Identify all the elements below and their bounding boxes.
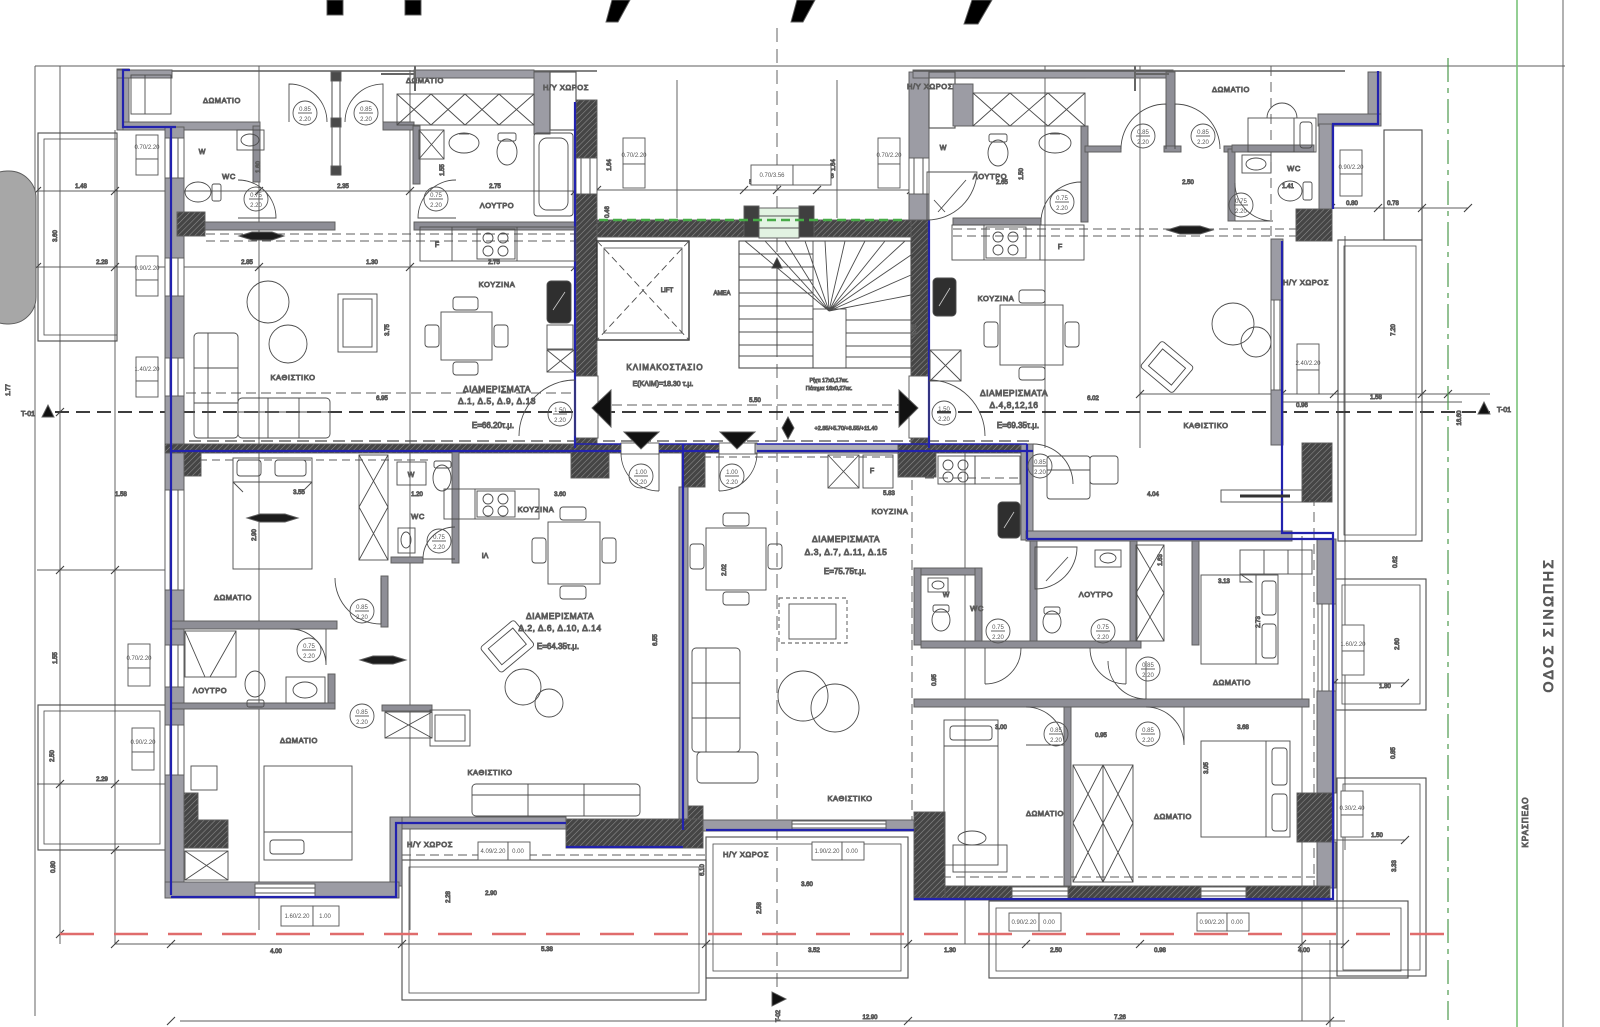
svg-text:ΔΩΜΑΤΙΟ: ΔΩΜΑΤΙΟ [1154,812,1192,821]
svg-text:Η/Υ ΧΩΡΟΣ: Η/Υ ΧΩΡΟΣ [723,850,769,859]
svg-text:WC: WC [222,172,236,181]
svg-text:0.85: 0.85 [360,107,372,113]
svg-text:ΔΩΜΑΤΙΟ: ΔΩΜΑΤΙΟ [1213,678,1251,687]
svg-text:1.63: 1.63 [1158,554,1164,566]
svg-text:W: W [943,592,950,599]
svg-text:4.09/2.20: 4.09/2.20 [480,849,506,855]
svg-text:2.75: 2.75 [489,184,501,190]
svg-text:ΚΡΑΣΠΕΔΟ: ΚΡΑΣΠΕΔΟ [1521,797,1530,848]
svg-text:2.20: 2.20 [1050,738,1062,744]
svg-text:16.60: 16.60 [1457,410,1463,426]
svg-text:2.20: 2.20 [433,545,445,551]
svg-text:3.60: 3.60 [801,882,813,888]
svg-text:Δ.2, Δ.6, Δ.10, Δ.14: Δ.2, Δ.6, Δ.10, Δ.14 [518,623,601,633]
svg-text:Δ.4,8,12,16: Δ.4,8,12,16 [990,400,1039,410]
svg-text:Η/Υ ΧΩΡΟΣ: Η/Υ ΧΩΡΟΣ [907,82,953,91]
svg-text:E=64.35τ.μ.: E=64.35τ.μ. [537,642,579,651]
svg-text:T-01: T-01 [1497,407,1511,414]
svg-text:2.60: 2.60 [1395,638,1401,650]
svg-text:ΚΛΙΜΑΚΟΣΤΑΣΙΟ: ΚΛΙΜΑΚΟΣΤΑΣΙΟ [626,363,703,372]
svg-text:ΚΑΘΙΣΤΙΚΟ: ΚΑΘΙΣΤΙΚΟ [270,373,315,382]
svg-text:0.00: 0.00 [512,849,524,855]
svg-text:Δ.1, Δ.5, Δ.9, Δ.13: Δ.1, Δ.5, Δ.9, Δ.13 [458,396,536,406]
svg-text:ΚΟΥΖΙΝΑ: ΚΟΥΖΙΝΑ [872,507,909,516]
svg-text:3.52: 3.52 [808,948,820,954]
svg-text:F: F [1058,244,1062,251]
svg-text:0.75: 0.75 [250,193,262,199]
svg-text:E=75.75τ.μ.: E=75.75τ.μ. [824,567,866,576]
svg-text:0.46: 0.46 [605,206,611,218]
svg-text:1.55: 1.55 [53,652,59,664]
svg-text:0.95: 0.95 [1095,733,1107,739]
svg-text:ΔΙΑΜΕΡΙΣΜΑΤΑ: ΔΙΑΜΕΡΙΣΜΑΤΑ [812,534,880,544]
svg-text:1.64: 1.64 [607,159,613,171]
svg-text:Πάτημα 16x0,27εκ.: Πάτημα 16x0,27εκ. [806,385,853,392]
svg-text:3.55: 3.55 [293,490,305,496]
svg-text:12.90: 12.90 [862,1015,878,1021]
svg-text:ΔΩΜΑΤΙΟ: ΔΩΜΑΤΙΟ [214,593,252,602]
svg-text:2.75: 2.75 [488,260,500,266]
svg-text:1.50: 1.50 [1371,833,1383,839]
svg-text:0.90/2.20: 0.90/2.20 [134,266,160,272]
svg-text:0.00: 0.00 [1231,920,1243,926]
svg-text:1.30: 1.30 [944,948,956,954]
svg-text:2.50: 2.50 [50,750,56,762]
svg-text:3.60: 3.60 [53,230,59,242]
svg-text:ΔΩΜΑΤΙΟ: ΔΩΜΑΤΙΟ [1026,809,1064,818]
svg-text:2.20: 2.20 [299,117,311,123]
svg-text:1.00: 1.00 [726,470,738,476]
svg-text:0.00: 0.00 [846,849,858,855]
svg-text:+2.85/+5.70/+8.55/+11.40: +2.85/+5.70/+8.55/+11.40 [815,426,878,432]
svg-text:WC: WC [1287,164,1301,173]
svg-text:2.20: 2.20 [992,635,1004,641]
svg-text:0.90/2.20: 0.90/2.20 [1338,165,1364,171]
svg-text:WC: WC [970,604,984,613]
svg-text:1.55: 1.55 [440,164,446,176]
svg-text:1.50: 1.50 [554,408,566,414]
svg-text:0.90/2.20: 0.90/2.20 [1011,920,1037,926]
svg-text:Ε(ΚΛΙΜ)=18.30 τ.μ.: Ε(ΚΛΙΜ)=18.30 τ.μ. [633,381,694,388]
svg-text:2.20: 2.20 [356,720,368,726]
svg-text:0.95: 0.95 [932,674,938,686]
svg-text:0.85: 0.85 [1197,130,1209,136]
svg-text:0.98: 0.98 [1154,948,1166,954]
svg-text:2.28: 2.28 [446,891,452,903]
svg-text:0.75: 0.75 [1056,196,1068,202]
svg-text:2.50: 2.50 [1182,180,1194,186]
svg-text:2.20: 2.20 [1142,738,1154,744]
svg-text:7.20: 7.20 [1391,324,1397,336]
svg-text:1.00: 1.00 [635,470,647,476]
svg-text:0.85: 0.85 [1050,728,1062,734]
svg-text:1.30: 1.30 [366,260,378,266]
svg-text:0.80: 0.80 [51,861,57,873]
svg-text:0.85: 0.85 [1034,460,1046,466]
svg-text:3.05: 3.05 [1204,762,1210,774]
svg-text:2.35: 2.35 [337,184,349,190]
svg-text:2.90: 2.90 [485,891,497,897]
svg-text:6.10: 6.10 [700,864,706,876]
svg-text:0.70/2.20: 0.70/2.20 [134,145,160,151]
svg-text:LIFT: LIFT [661,288,674,294]
svg-text:1.58: 1.58 [115,492,127,498]
svg-text:2.20: 2.20 [938,417,950,423]
svg-text:0.75: 0.75 [430,193,442,199]
svg-text:0.62: 0.62 [1393,556,1399,568]
svg-text:2.20: 2.20 [250,203,262,209]
svg-text:ΔΙΑΜΕΡΙΣΜΑΤΑ: ΔΙΑΜΕΡΙΣΜΑΤΑ [980,388,1048,398]
svg-text:2.29: 2.29 [96,777,108,783]
svg-text:E=66.20τ.μ.: E=66.20τ.μ. [472,421,514,430]
svg-text:2.20: 2.20 [430,203,442,209]
svg-text:2.50: 2.50 [1050,948,1062,954]
svg-text:1.64: 1.64 [831,159,837,171]
svg-text:1.77: 1.77 [6,384,12,396]
svg-text:3.75: 3.75 [912,324,918,336]
svg-text:2.20: 2.20 [1034,470,1046,476]
svg-text:5.83: 5.83 [883,491,895,497]
svg-text:0.75: 0.75 [992,625,1004,631]
svg-text:0.85: 0.85 [299,107,311,113]
svg-text:1.80: 1.80 [1379,684,1391,690]
svg-text:0.85: 0.85 [1142,728,1154,734]
svg-text:Δ.3, Δ.7, Δ.11, Δ.15: Δ.3, Δ.7, Δ.11, Δ.15 [805,547,888,557]
svg-text:0.70/2.20: 0.70/2.20 [621,153,647,159]
svg-text:1.60/2.20: 1.60/2.20 [284,914,310,920]
svg-text:0.75: 0.75 [303,644,315,650]
svg-text:1.50: 1.50 [1019,168,1025,180]
svg-text:0.70/3.56: 0.70/3.56 [759,173,785,179]
svg-text:ΚΟΥΖΙΝΑ: ΚΟΥΖΙΝΑ [479,280,516,289]
svg-text:Ρίχτι 17x0,17εκ.: Ρίχτι 17x0,17εκ. [809,378,848,384]
svg-text:7.26: 7.26 [1114,1015,1126,1021]
svg-text:1.60: 1.60 [256,161,262,173]
svg-text:T-01: T-01 [21,411,35,418]
svg-text:Η/Υ ΧΩΡΟΣ: Η/Υ ΧΩΡΟΣ [543,83,589,92]
svg-text:2.20: 2.20 [726,480,738,486]
svg-text:2.90: 2.90 [252,529,258,541]
svg-text:ΚΑΘΙΣΤΙΚΟ: ΚΑΘΙΣΤΙΚΟ [827,794,872,803]
svg-text:2.20: 2.20 [303,654,315,660]
svg-text:1.60/2.20: 1.60/2.20 [1340,642,1366,648]
svg-text:1.40/2.20: 1.40/2.20 [134,367,160,373]
svg-text:ΔΩΜΑΤΙΟ: ΔΩΜΑΤΙΟ [1212,85,1250,94]
svg-text:5.50: 5.50 [749,398,761,404]
svg-text:2.20: 2.20 [1197,140,1209,146]
svg-text:1.41: 1.41 [1282,184,1294,190]
svg-text:ΚΑΘΙΣΤΙΚΟ: ΚΑΘΙΣΤΙΚΟ [1183,421,1228,430]
svg-text:3.60: 3.60 [554,492,566,498]
svg-text:0.70/2.20: 0.70/2.20 [126,656,152,662]
svg-text:2.73: 2.73 [1256,616,1262,628]
svg-text:3.68: 3.68 [1237,725,1249,731]
svg-text:0.75: 0.75 [433,535,445,541]
svg-text:ΛΟΥΤΡΟ: ΛΟΥΤΡΟ [480,201,514,210]
svg-text:2.65: 2.65 [996,180,1008,186]
svg-text:2.40/2.20: 2.40/2.20 [1295,361,1321,367]
svg-text:0.85: 0.85 [1137,130,1149,136]
svg-text:0.30/2.40: 0.30/2.40 [1339,806,1365,812]
svg-text:3.13: 3.13 [1218,579,1230,585]
svg-text:ΑΜΕΑ: ΑΜΕΑ [713,291,730,297]
svg-text:ΚΟΥΖΙΝΑ: ΚΟΥΖΙΝΑ [518,505,555,514]
svg-text:2.20: 2.20 [1142,673,1154,679]
svg-text:2.20: 2.20 [356,615,368,621]
svg-text:6.55: 6.55 [653,634,659,646]
svg-text:ΚΑΘΙΣΤΙΚΟ: ΚΑΘΙΣΤΙΚΟ [467,768,512,777]
svg-text:0.78: 0.78 [1387,201,1399,207]
svg-text:2.28: 2.28 [96,260,108,266]
svg-text:ΛΟΥΤΡΟ: ΛΟΥΤΡΟ [1079,590,1113,599]
svg-text:W: W [199,149,206,156]
svg-text:2.20: 2.20 [1137,140,1149,146]
svg-text:3.33: 3.33 [1392,860,1398,872]
svg-text:0.85: 0.85 [356,605,368,611]
svg-text:ΔΩΜΑΤΙΟ: ΔΩΜΑΤΙΟ [280,736,318,745]
svg-text:T-02: T-02 [776,1009,782,1022]
svg-text:ΛΟΥΤΡΟ: ΛΟΥΤΡΟ [193,686,227,695]
svg-text:2.20: 2.20 [360,117,372,123]
svg-text:F: F [435,242,439,249]
svg-text:0.90/2.20: 0.90/2.20 [1199,920,1225,926]
svg-text:1.58: 1.58 [1370,395,1382,401]
svg-text:ΔΙΑΜΕΡΙΣΜΑΤΑ: ΔΙΑΜΕΡΙΣΜΑΤΑ [526,611,594,621]
svg-text:ΚΟΥΖΙΝΑ: ΚΟΥΖΙΝΑ [978,294,1015,303]
svg-text:2.85: 2.85 [241,260,253,266]
svg-text:ΔΩΜΑΤΙΟ: ΔΩΜΑΤΙΟ [406,76,444,85]
svg-text:4.00: 4.00 [270,949,282,955]
svg-text:3.75: 3.75 [385,324,391,336]
svg-text:ΔΙΑΜΕΡΙΣΜΑΤΑ: ΔΙΑΜΕΡΙΣΜΑΤΑ [463,384,531,394]
svg-text:2.20: 2.20 [1097,635,1109,641]
svg-text:W: W [940,145,947,152]
svg-text:F: F [870,468,874,475]
svg-text:Η/Υ ΧΩΡΟΣ: Η/Υ ΧΩΡΟΣ [407,840,453,849]
svg-text:2.58: 2.58 [757,902,763,914]
svg-text:0.75: 0.75 [1235,199,1247,205]
svg-text:4.00: 4.00 [1298,948,1310,954]
svg-text:0.75: 0.75 [1097,625,1109,631]
svg-text:ΔΩΜΑΤΙΟ: ΔΩΜΑΤΙΟ [203,96,241,105]
svg-text:0.80: 0.80 [1346,201,1358,207]
svg-text:0.90/2.20: 0.90/2.20 [130,740,156,746]
svg-text:0.70/2.20: 0.70/2.20 [876,153,902,159]
svg-text:0.85: 0.85 [1142,663,1154,669]
svg-text:0.00: 0.00 [1043,920,1055,926]
svg-text:2.20: 2.20 [554,418,566,424]
svg-text:1.90/2.20: 1.90/2.20 [814,849,840,855]
svg-text:5.38: 5.38 [541,947,553,953]
svg-text:0.85: 0.85 [356,710,368,716]
svg-text:2.20: 2.20 [635,480,647,486]
svg-text:Η/Υ ΧΩΡΟΣ: Η/Υ ΧΩΡΟΣ [1283,278,1329,287]
svg-text:WC: WC [411,512,425,521]
svg-text:2.20: 2.20 [1056,206,1068,212]
svg-text:ΟΔΟΣ ΣΙΝΩΠΗΣ: ΟΔΟΣ ΣΙΝΩΠΗΣ [1540,557,1556,692]
svg-text:1.48: 1.48 [75,184,87,190]
svg-text:ΙΛ: ΙΛ [482,553,489,560]
svg-text:W: W [408,472,415,479]
svg-text:E=69.35τ.μ.: E=69.35τ.μ. [997,421,1039,430]
svg-text:0.85: 0.85 [1391,747,1397,759]
svg-text:3.00: 3.00 [995,725,1007,731]
svg-text:2.02: 2.02 [722,564,728,576]
svg-text:1.00: 1.00 [319,914,331,920]
svg-text:2.20: 2.20 [1235,209,1247,215]
svg-text:1.50: 1.50 [938,407,950,413]
svg-text:4.04: 4.04 [1147,492,1159,498]
svg-text:1.20: 1.20 [411,492,423,498]
svg-text:6.02: 6.02 [1087,396,1099,402]
svg-text:0.96: 0.96 [1296,403,1308,409]
svg-text:6.95: 6.95 [376,396,388,402]
